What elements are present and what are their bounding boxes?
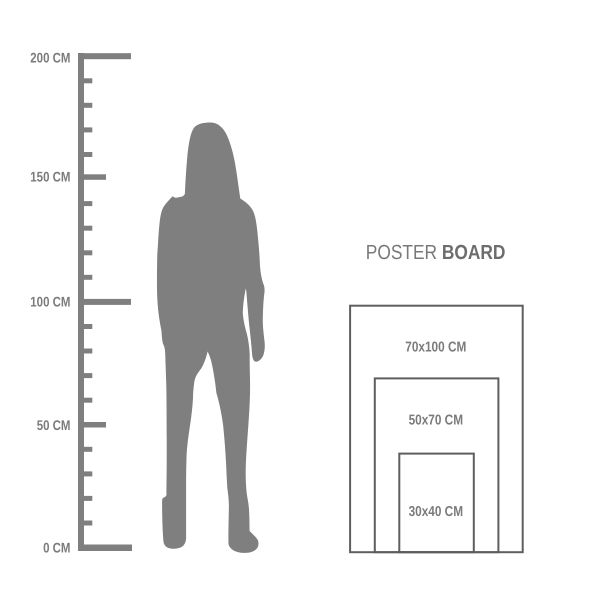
svg-text:150 CM: 150 CM — [30, 169, 70, 185]
svg-text:70x100 CM: 70x100 CM — [405, 339, 466, 355]
svg-text:POSTER BOARD: POSTER BOARD — [366, 242, 506, 264]
svg-text:50 CM: 50 CM — [37, 417, 71, 433]
svg-text:200 CM: 200 CM — [30, 50, 70, 66]
svg-text:100 CM: 100 CM — [30, 294, 70, 310]
svg-text:0 CM: 0 CM — [43, 539, 70, 555]
svg-text:50x70 CM: 50x70 CM — [409, 412, 463, 428]
svg-text:30x40 CM: 30x40 CM — [409, 504, 463, 520]
